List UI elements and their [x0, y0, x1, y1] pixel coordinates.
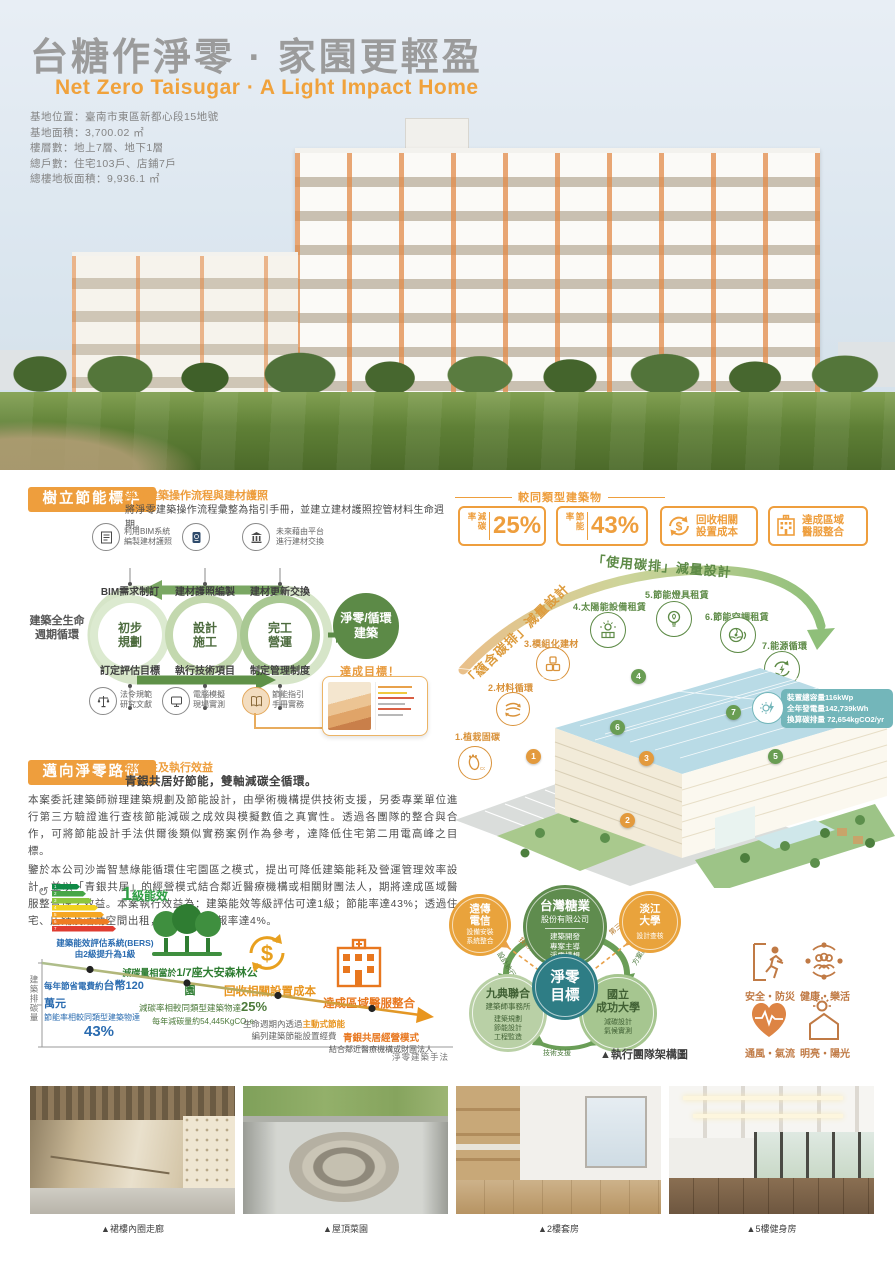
building-marker-5: 5	[768, 749, 783, 764]
guide-booklet-thumbnail	[322, 676, 428, 736]
bers-refresh-icon: ↺	[38, 884, 49, 900]
phase3-bottom-label: 制定管理制度	[220, 662, 340, 677]
poster: 台糖作淨零 · 家園更輕盈 Net Zero Taisugar · A Ligh…	[0, 0, 895, 1266]
callout-5: 5.節能燈具租賃	[645, 588, 709, 601]
photo-caption-2: ▲屋頂菜園	[243, 1222, 448, 1235]
building-marker-4: 4	[631, 669, 646, 684]
stat-value: 25%	[493, 512, 541, 540]
safety-evacuation-icon	[746, 940, 790, 984]
law-icon-label: 法令規範研究文獻	[120, 690, 152, 710]
stats-header: 較同類型建築物	[455, 489, 665, 505]
phase3-top-label: 建材更新交換	[220, 583, 340, 598]
team-circle-fareastone: 遠傳電信 設備安裝系統整合	[449, 894, 511, 956]
booklet-page	[375, 682, 423, 730]
info-line: 樓層數：地上7層、地下1層	[30, 141, 219, 157]
trees-icon	[148, 902, 226, 960]
photo-corridor	[30, 1086, 235, 1214]
photo-gym	[669, 1086, 874, 1214]
sunlight-house-icon	[802, 996, 846, 1042]
platform-icon-label: 未來藉由平台進行建材交換	[276, 527, 324, 547]
solar-energy-icon	[752, 692, 784, 724]
bim-icon	[92, 523, 120, 551]
law-scale-icon	[89, 687, 117, 715]
solar-rental-icon	[590, 612, 626, 648]
handbook-connector	[254, 713, 256, 728]
roadmap-stop4-text: 青銀共居經營模式 結合鄰近醫療機構或財團法人	[316, 1030, 446, 1055]
info-line: 基地位置：臺南市東區新都心段15地號	[30, 110, 219, 126]
info-line: 總樓地板面積：9,936.1 ㎡	[30, 172, 219, 188]
benefit-label-brightness: 明亮・陽光	[793, 1045, 857, 1060]
page-subtitle: Net Zero Taisugar · A Light Impact Home	[55, 76, 479, 100]
photo-suite	[456, 1086, 661, 1214]
section2-tagline: 青銀共居好節能，雙軸減碳全循環。	[125, 773, 317, 789]
photo-caption-3: ▲2樓套房	[456, 1222, 661, 1235]
page-title: 台糖作淨零 · 家園更輕盈	[30, 26, 483, 81]
phase2-circle: 設計施工	[173, 603, 237, 667]
callout-4: 4.太陽能設備租賃	[573, 600, 646, 613]
computer-icon	[162, 687, 190, 715]
info-line: 總戶數：住宅103戶、店鋪7戶	[30, 157, 219, 173]
dollar-cycle-icon: $	[666, 513, 692, 539]
photo-caption-4: ▲5樓健身房	[669, 1222, 874, 1235]
svg-text:$: $	[676, 520, 683, 534]
stat-value: 43%	[591, 512, 639, 540]
hospital-icon	[774, 514, 798, 538]
community-health-icon	[801, 938, 847, 984]
result-circle: 淨零/循環建築	[333, 593, 399, 659]
info-line: 基地面積：3,700.02 ㎡	[30, 126, 219, 142]
building-marker-3: 3	[639, 751, 654, 766]
passport-icon	[182, 523, 210, 551]
hvac-rental-icon	[720, 617, 756, 653]
led-rental-icon	[656, 601, 692, 637]
building-marker-2: 2	[620, 813, 635, 828]
handbook-connector	[254, 727, 322, 729]
stat-label: 節能率	[563, 512, 588, 540]
body-paragraph-1: 本案委託建築師辦理建築規劃及節能設計，由學術機構提供技術支援，另委專業單位進行第…	[28, 792, 458, 860]
handbook-icon-label: 節能指引手冊實務	[272, 690, 304, 710]
booklet-cover	[328, 682, 371, 730]
phase3-circle: 完工營運	[248, 603, 312, 667]
building-marker-7: 7	[726, 705, 741, 720]
bers-rating-bars: 1 2 3 4 5 6 7	[52, 884, 122, 933]
grass-field	[0, 392, 895, 470]
stat-energy-saving: 節能率 43%	[556, 506, 648, 546]
heart-pulse-icon	[747, 998, 791, 1040]
stat-medical-integration: 達成區域醫服整合	[768, 506, 868, 546]
bim-icon-label: 利用BIM系統編製建材護照	[124, 527, 172, 547]
photo-rooftop	[243, 1086, 448, 1214]
lifecycle-left-label: 建築全生命週期循環	[26, 614, 88, 642]
energy-data-box: 裝置總容量116kWp 全年發電量142,739kWh 換算碳排量 72,654…	[781, 689, 893, 728]
team-circle-netzero-goal: 淨零目標	[532, 954, 598, 1020]
team-circle-tamkang: 淡江大學 設計查核	[619, 891, 681, 953]
team-diagram-caption: ▲執行團隊架構圖	[600, 1046, 688, 1062]
building-marker-1: 1	[526, 749, 541, 764]
stat-cost-recovery: $ 回收相關設置成本	[660, 506, 758, 546]
handbook-icon	[242, 687, 270, 715]
computer-icon-label: 電腦模擬現場實測	[193, 690, 225, 710]
building-marker-6: 6	[610, 720, 625, 735]
phase1-circle: 初步規劃	[98, 603, 162, 667]
photo-caption-1: ▲裙樓內圈走廊	[30, 1222, 235, 1235]
stat-carbon-reduction: 減碳率 25%	[458, 506, 546, 546]
exchange-platform-icon	[242, 523, 270, 551]
callout-7: 7.能源循環	[762, 639, 807, 652]
team-arrow-label-b: 技術支援	[543, 1048, 571, 1058]
stat-label: 減碳率	[465, 512, 490, 540]
roadmap-yaxis-label: 建築排碳量	[28, 975, 40, 1023]
project-info: 基地位置：臺南市東區新都心段15地號 基地面積：3,700.02 ㎡ 樓層數：地…	[30, 110, 219, 188]
